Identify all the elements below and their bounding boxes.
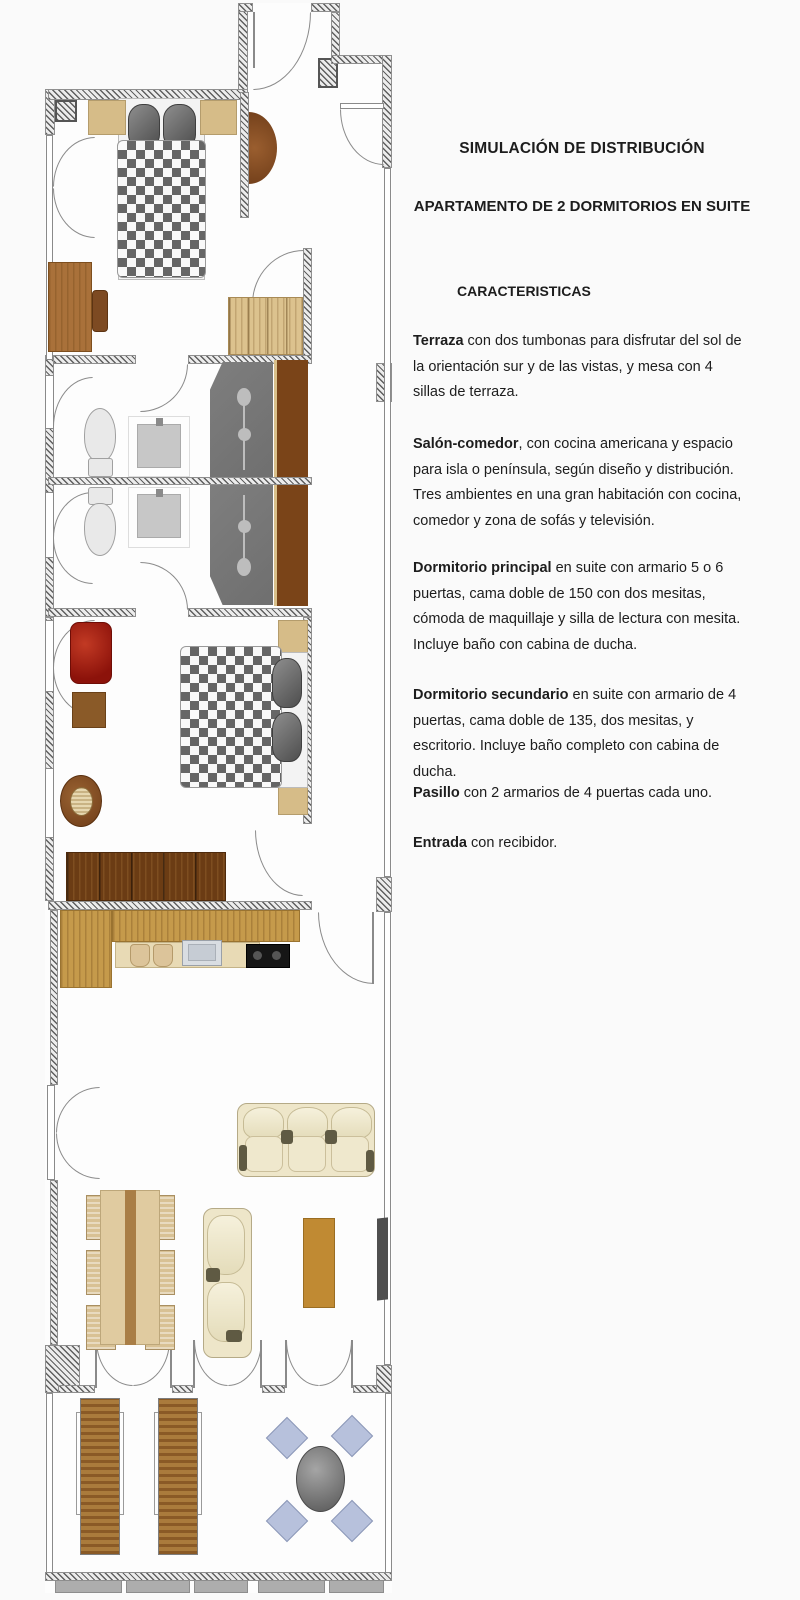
shower-head [237, 558, 251, 576]
section-heading: CARACTERISTICAS [457, 283, 591, 299]
shower-bar [243, 400, 245, 470]
wall-segment [188, 608, 312, 617]
paragraph-text: con recibidor. [467, 835, 557, 851]
nightstand [88, 100, 126, 135]
wall-segment [311, 3, 340, 12]
balcony-rail [258, 1580, 325, 1593]
sun-lounger [158, 1398, 198, 1555]
window-wall [47, 1085, 55, 1180]
reading-armchair [70, 622, 112, 684]
bed-pillow [272, 712, 302, 762]
wall-segment [50, 910, 58, 1085]
paragraph-entrada: Entrada con recibidor. [413, 831, 749, 857]
kitchen-stool [153, 944, 173, 967]
wall-segment [262, 1385, 285, 1393]
hall-wardrobe [274, 360, 308, 477]
paragraph-terraza: Terraza con dos tumbonas para disfrutar … [413, 329, 749, 406]
paragraph-lead: Terraza [413, 333, 464, 349]
wall-segment [48, 901, 312, 910]
sofa-accent [281, 1130, 293, 1144]
sofa-accent [239, 1145, 247, 1171]
terrace-table [296, 1446, 345, 1512]
exterior-wall [384, 168, 391, 877]
bed-duvet [117, 140, 206, 278]
wardrobe-4-doors [228, 297, 303, 355]
paragraph-pasillo: Pasillo con 2 armarios de 4 puertas cada… [413, 781, 749, 807]
sink [137, 494, 181, 538]
kitchen-stool [130, 944, 150, 967]
wall-segment [48, 477, 312, 485]
wall-segment [303, 248, 312, 362]
balcony-rail [329, 1580, 384, 1593]
paragraph-lead: Pasillo [413, 785, 460, 801]
wall-corner [376, 1365, 392, 1393]
wall-column [55, 100, 77, 122]
page-title: SIMULACIÓN DE DISTRIBUCIÓN [413, 140, 751, 158]
sofa-cushion [331, 1107, 372, 1139]
paragraph-lead: Dormitorio principal [413, 560, 552, 576]
nightstand [200, 100, 237, 135]
wall-segment [240, 92, 249, 218]
stove-burner [272, 951, 281, 960]
paragraph-lead: Dormitorio secundario [413, 687, 569, 703]
sink [137, 424, 181, 468]
sofa-cushion [287, 1107, 328, 1139]
wall-segment [172, 1385, 193, 1393]
wall-segment [238, 3, 248, 92]
wall-segment [48, 608, 136, 617]
sofa-seat [288, 1136, 326, 1172]
paragraph-dormitorio-secundario: Dormitorio secundario en suite con armar… [413, 683, 749, 785]
faucet [156, 489, 163, 497]
wall-segment [48, 355, 136, 364]
wall-segment [50, 1180, 58, 1345]
window [45, 492, 54, 558]
toilet [84, 408, 116, 462]
toilet-tank [88, 458, 113, 477]
page-subtitle: APARTAMENTO DE 2 DORMITORIOS EN SUITE [413, 198, 751, 215]
shower-cabin [210, 485, 273, 605]
sun-lounger [80, 1398, 120, 1555]
terrace-wall [46, 1393, 53, 1573]
faucet [156, 418, 163, 426]
kitchen-counter [112, 910, 300, 942]
sofa-accent [325, 1130, 337, 1144]
sofa-accent [226, 1330, 242, 1342]
terrace-wall [385, 1393, 392, 1573]
shower-bar [243, 495, 245, 560]
balcony-rail [55, 1580, 122, 1593]
wardrobe-6-doors [66, 852, 226, 901]
wall-segment [331, 12, 340, 58]
toilet [84, 503, 116, 556]
sofa-cushion [207, 1215, 245, 1275]
wall-segment [58, 1385, 95, 1393]
sofa-accent [206, 1268, 220, 1282]
window [45, 620, 54, 692]
desk [48, 262, 92, 352]
stove-burner [253, 951, 262, 960]
bed-duvet [180, 646, 282, 788]
kitchen-counter [60, 910, 112, 988]
wall-pier [376, 877, 392, 912]
kitchen-sink-basin [188, 944, 216, 961]
paragraph-dormitorio-principal: Dormitorio principal en suite con armari… [413, 556, 749, 658]
paragraph-salon-comedor: Salón-comedor, con cocina americana y es… [413, 432, 749, 534]
desk-chair [92, 290, 108, 332]
side-table [72, 692, 106, 728]
tv-panel [377, 1217, 388, 1300]
wall-segment [238, 3, 253, 12]
sofa-cushion [243, 1107, 284, 1139]
dining-table-runner [125, 1190, 136, 1345]
paragraph-lead: Salón-comedor [413, 436, 519, 452]
shower-cabin [210, 362, 273, 477]
bed-pillow [272, 658, 302, 708]
window [45, 768, 54, 838]
sofa-accent [366, 1150, 374, 1172]
sideboard [303, 1218, 335, 1308]
balcony-rail [194, 1580, 248, 1593]
balcony-rail [126, 1580, 190, 1593]
paragraph-lead: Entrada [413, 835, 467, 851]
hall-wardrobe [274, 485, 308, 606]
paragraph-text: con 2 armarios de 4 puertas cada uno. [460, 785, 712, 801]
sofa-seat [245, 1136, 283, 1172]
table-lamp [70, 787, 93, 816]
